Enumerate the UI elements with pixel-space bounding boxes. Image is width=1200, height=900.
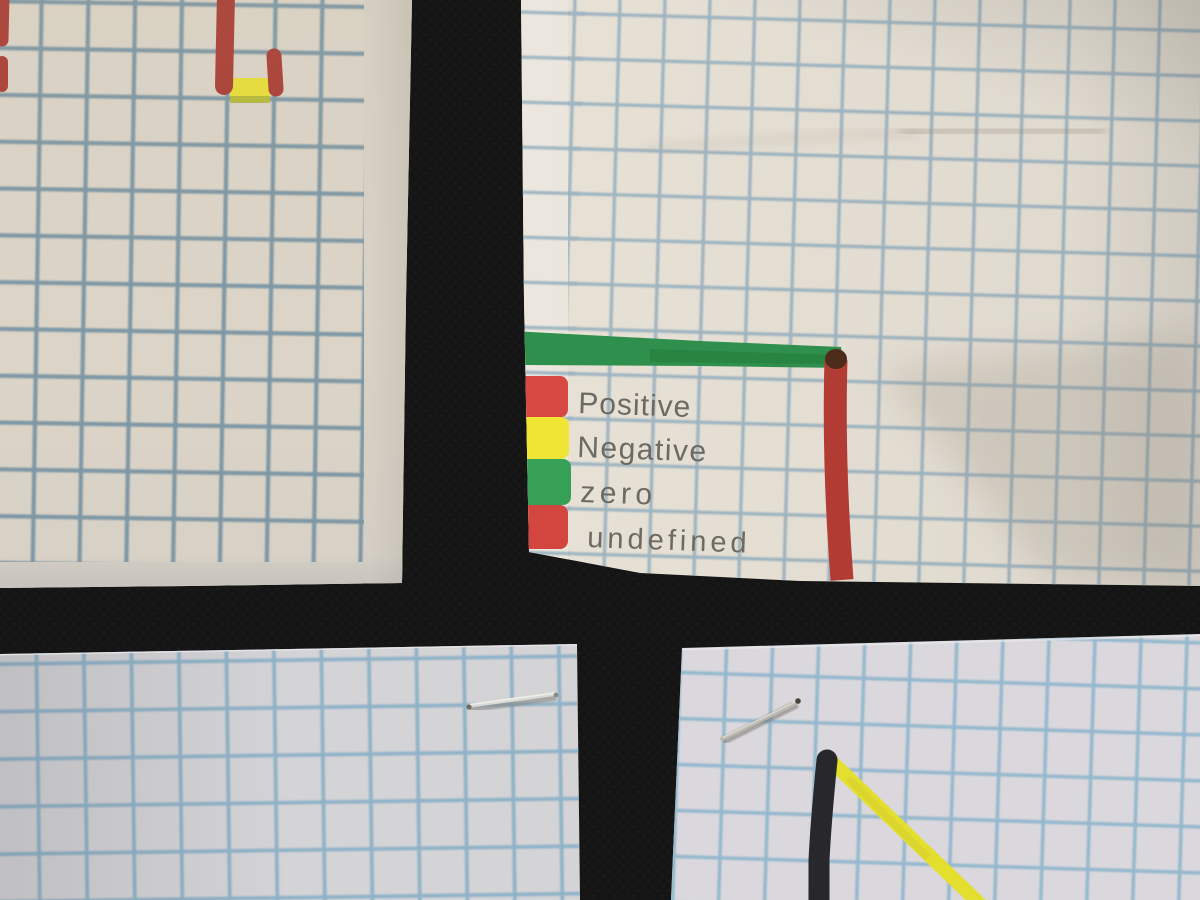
svg-text:Negative: Negative xyxy=(577,431,708,469)
svg-text:Positive: Positive xyxy=(578,387,692,424)
svg-text:zero: zero xyxy=(580,476,657,512)
svg-text:undefined: undefined xyxy=(587,522,751,560)
